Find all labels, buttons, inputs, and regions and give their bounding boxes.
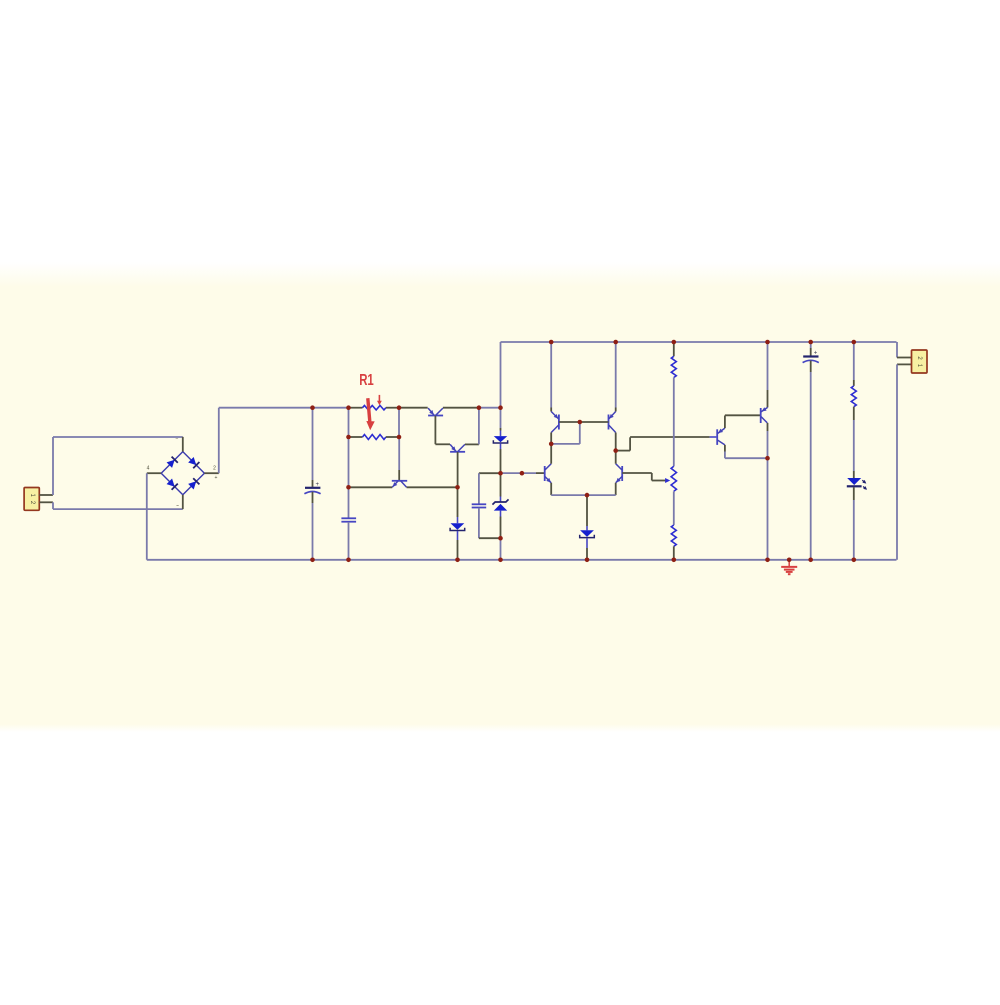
svg-text:+: + <box>316 482 320 488</box>
svg-text:+: + <box>814 351 818 357</box>
svg-text:+: + <box>215 475 218 481</box>
svg-text:~: ~ <box>176 504 179 510</box>
svg-text:−: − <box>176 437 179 443</box>
svg-text:R1: R1 <box>359 372 374 389</box>
svg-text:4: 4 <box>147 466 150 472</box>
svg-text:2: 2 <box>213 466 216 472</box>
